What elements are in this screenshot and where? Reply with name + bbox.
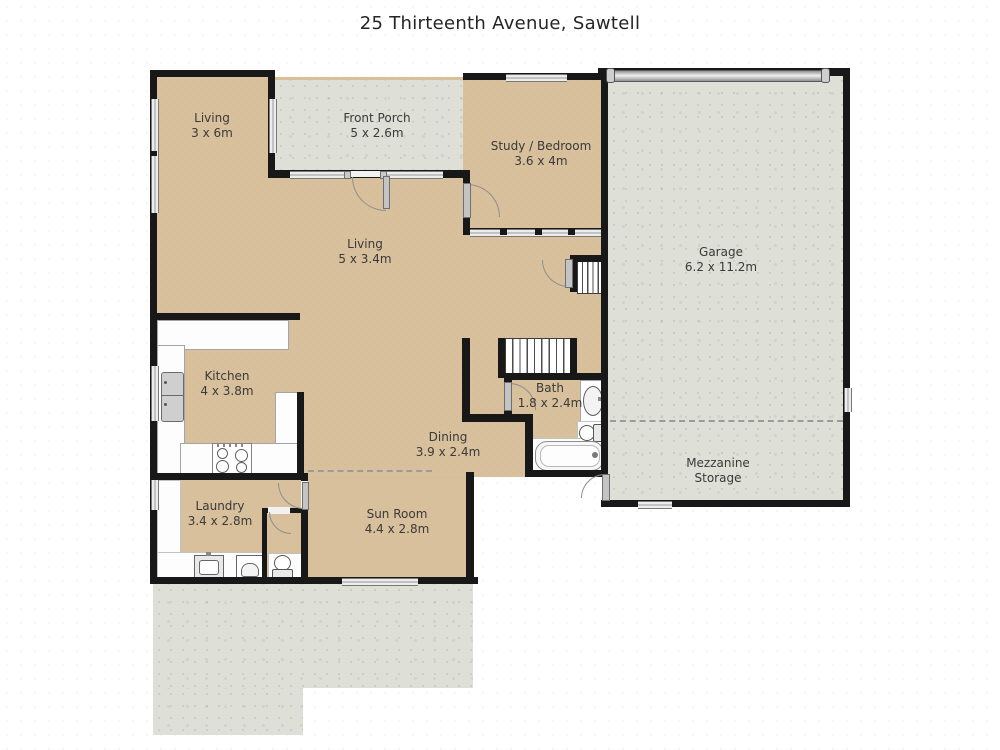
label-laundry: Laundry 3.4 x 2.8m xyxy=(140,499,300,529)
label-study-bedroom: Study / Bedroom 3.6 x 4m xyxy=(461,139,621,169)
window-porch-2 xyxy=(387,171,443,179)
garage-door-cap-left xyxy=(606,68,615,83)
floor-plan: 25 Thirteenth Avenue, Sawtell xyxy=(0,0,1000,750)
room-name: Living xyxy=(132,111,292,126)
room-name: Dining xyxy=(368,430,528,445)
room-name: Garage xyxy=(641,245,801,260)
label-bath: Bath 1.8 x 2.4m xyxy=(470,381,630,411)
laundry-door-leaf xyxy=(302,482,309,510)
label-kitchen: Kitchen 4 x 3.8m xyxy=(147,369,307,399)
wall-kitchen-right xyxy=(297,392,304,480)
wall-kitchen-top xyxy=(150,313,300,320)
room-dims: 5 x 3.4m xyxy=(285,252,445,267)
floor-patio-rear-lower xyxy=(153,688,303,735)
floor-patio-rear xyxy=(153,584,473,688)
room-dims: 3 x 6m xyxy=(132,126,292,141)
room-name: Study / Bedroom xyxy=(461,139,621,154)
wall-stairs-upper-top xyxy=(570,255,608,262)
window-study-bottom-tick-2 xyxy=(535,228,542,235)
mezzanine-divider xyxy=(610,420,843,422)
stairs-upper-flight xyxy=(577,261,603,294)
wall-hall-bath xyxy=(462,414,533,422)
label-dining: Dining 3.9 x 2.4m xyxy=(368,430,528,460)
wall-laundry-top xyxy=(150,473,308,480)
stove-icon xyxy=(212,443,252,474)
window-mullion xyxy=(150,151,157,156)
room-dims: 6.2 x 11.2m xyxy=(641,260,801,275)
garage-door-cap-right xyxy=(821,68,830,83)
room-dims: 4.4 x 2.8m xyxy=(317,522,477,537)
room-dims: 1.8 x 2.4m xyxy=(470,396,630,411)
wall-stairs-left xyxy=(498,338,505,378)
room-name: Laundry xyxy=(140,499,300,514)
room-name: Mezzanine xyxy=(638,456,798,471)
garage-door xyxy=(611,70,826,82)
front-entry-door-leaf xyxy=(383,176,390,209)
plan-title: 25 Thirteenth Avenue, Sawtell xyxy=(0,13,1000,34)
garage-side-door-leaf xyxy=(602,474,610,501)
room-name: Front Porch xyxy=(297,111,457,126)
wall-garage-right xyxy=(843,68,850,507)
room-name: Bath xyxy=(470,381,630,396)
label-living-main: Living 5 x 3.4m xyxy=(285,237,445,267)
label-sun-room: Sun Room 4.4 x 2.8m xyxy=(317,507,477,537)
wall-living-hall xyxy=(462,338,470,422)
floor-garage xyxy=(608,75,843,500)
wall-garage-left xyxy=(601,73,608,473)
dining-sunroom-divider xyxy=(308,470,432,472)
bathtub-icon xyxy=(535,441,604,471)
room-name: Kitchen xyxy=(147,369,307,384)
room-name: Living xyxy=(285,237,445,252)
room-dims: Storage xyxy=(638,471,798,486)
room-dims: 5 x 2.6m xyxy=(297,126,457,141)
room-name: Sun Room xyxy=(317,507,477,522)
room-dims: 3.4 x 2.8m xyxy=(140,514,300,529)
label-living-upper: Living 3 x 6m xyxy=(132,111,292,141)
wall-bath-top xyxy=(505,373,608,380)
wall-stairs-right xyxy=(570,338,577,378)
window-study-bottom-tick-1 xyxy=(500,228,507,235)
front-door-jamb-left xyxy=(344,171,351,179)
room-dims: 4 x 3.8m xyxy=(147,384,307,399)
window-sunroom-rear xyxy=(342,578,418,586)
window-garage-right xyxy=(844,388,852,412)
window-porch-1 xyxy=(290,171,344,179)
label-mezzanine: Mezzanine Storage xyxy=(638,456,798,486)
window-study-bottom-tick-3 xyxy=(568,228,575,235)
study-door-leaf xyxy=(463,183,471,218)
wall-rear xyxy=(150,577,478,584)
label-front-porch: Front Porch 5 x 2.6m xyxy=(297,111,457,141)
wall-top-living xyxy=(150,70,275,77)
room-dims: 3.9 x 2.4m xyxy=(368,445,528,460)
label-garage: Garage 6.2 x 11.2m xyxy=(641,245,801,275)
window-study-top xyxy=(506,74,567,82)
window-garage-bottom xyxy=(638,501,672,509)
stairs-door-leaf xyxy=(565,259,573,288)
room-dims: 3.6 x 4m xyxy=(461,154,621,169)
